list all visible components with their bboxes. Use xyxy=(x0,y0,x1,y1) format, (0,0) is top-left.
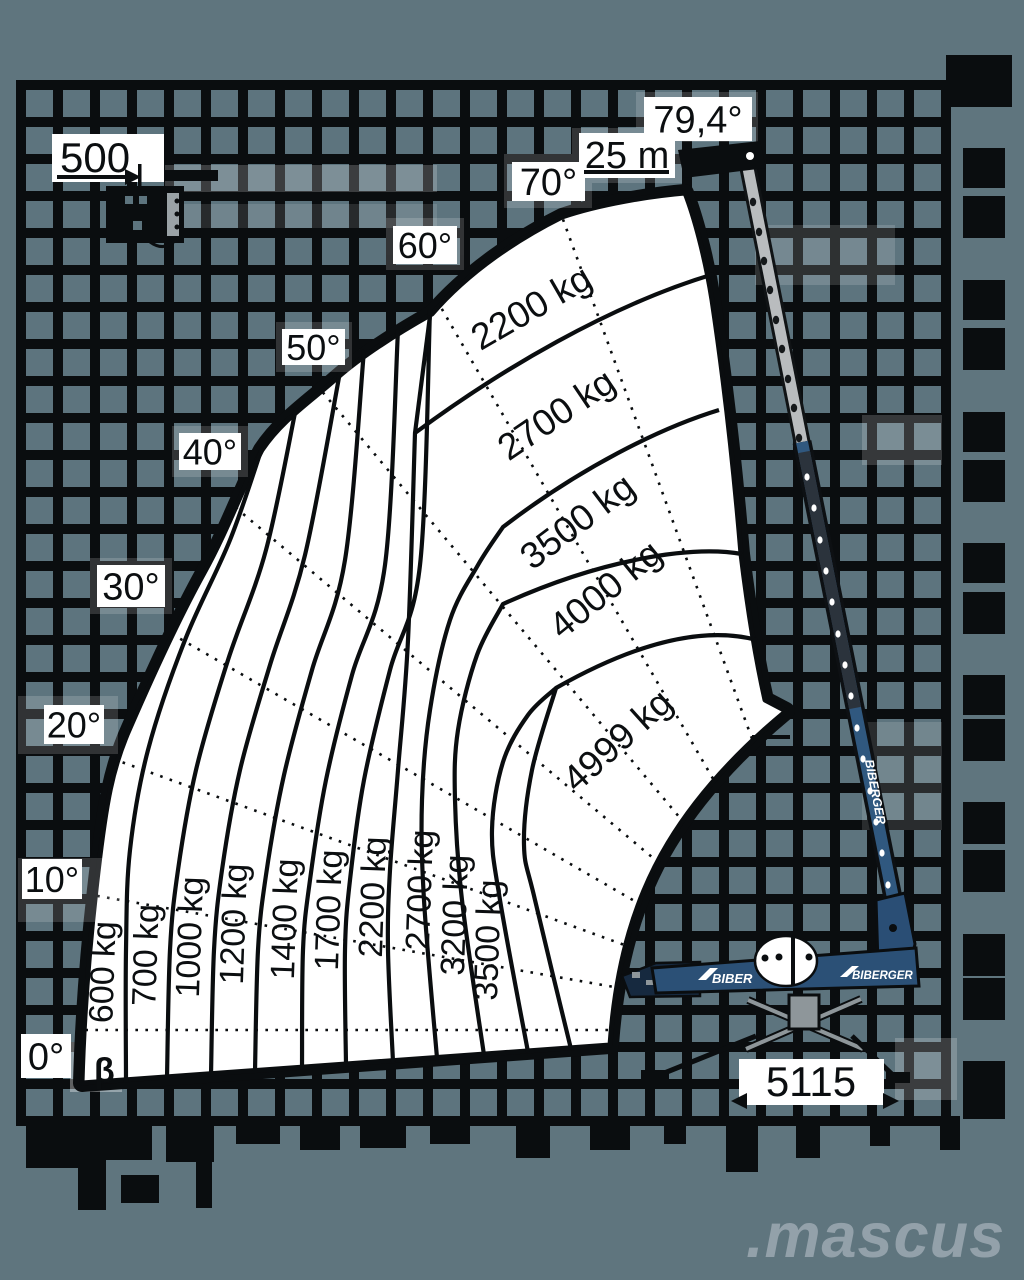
svg-text:1000 kg: 1000 kg xyxy=(169,876,211,998)
svg-text:BIBER: BIBER xyxy=(712,971,753,986)
svg-text:1200 kg: 1200 kg xyxy=(213,863,255,985)
svg-text:5115: 5115 xyxy=(766,1058,856,1105)
svg-text:β: β xyxy=(94,1052,115,1090)
svg-text:3500 kg: 3500 kg xyxy=(467,879,509,1001)
svg-text:.mascus: .mascus xyxy=(746,1201,1005,1271)
svg-text:60°: 60° xyxy=(398,225,452,266)
svg-text:1400 kg: 1400 kg xyxy=(264,858,306,980)
svg-text:700 kg: 700 kg xyxy=(125,903,167,1006)
svg-text:40°: 40° xyxy=(183,431,237,472)
svg-text:30°: 30° xyxy=(102,567,159,609)
svg-text:0°: 0° xyxy=(28,1037,64,1079)
svg-text:20°: 20° xyxy=(47,704,101,745)
svg-text:70°: 70° xyxy=(520,162,577,204)
svg-text:500: 500 xyxy=(60,134,130,181)
svg-text:2200 kg: 2200 kg xyxy=(352,836,394,958)
svg-text:50°: 50° xyxy=(286,327,340,368)
svg-text:10°: 10° xyxy=(25,859,79,900)
svg-text:600 kg: 600 kg xyxy=(82,920,124,1023)
svg-text:1700 kg: 1700 kg xyxy=(308,849,350,971)
svg-text:BIBERGER: BIBERGER xyxy=(852,970,913,982)
